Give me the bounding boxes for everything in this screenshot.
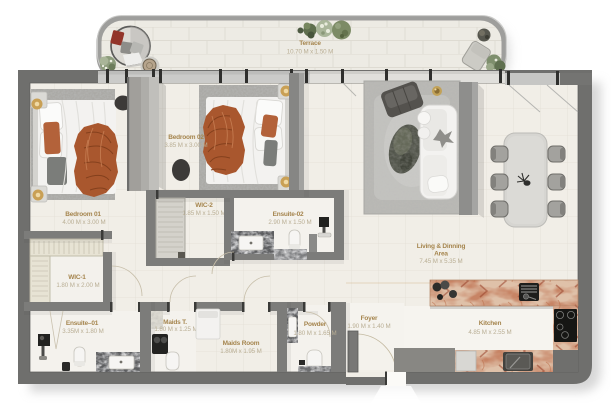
svg-text:Living & Dinning: Living & Dinning: [417, 243, 466, 250]
svg-text:Bedroom 02: Bedroom 02: [168, 134, 204, 141]
svg-text:2.90 M x 1.50 M: 2.90 M x 1.50 M: [268, 219, 311, 226]
svg-text:1.90 M x 1.40 M: 1.90 M x 1.40 M: [347, 323, 390, 330]
svg-text:3.85 M x 3.00 M: 3.85 M x 3.00 M: [164, 142, 207, 149]
svg-text:Area: Area: [434, 251, 448, 258]
svg-text:WIC-2: WIC-2: [195, 202, 213, 209]
svg-text:Maids T.: Maids T.: [163, 319, 187, 326]
svg-text:10.70 M x 1.50 M: 10.70 M x 1.50 M: [287, 49, 334, 56]
svg-text:4.85 M x 2.55 M: 4.85 M x 2.55 M: [468, 329, 511, 336]
svg-text:1.80 M x 2.00 M: 1.80 M x 2.00 M: [56, 282, 99, 289]
svg-text:1.85 M x 1.50 M: 1.85 M x 1.50 M: [182, 210, 225, 217]
svg-text:7.45 M x 5.35 M: 7.45 M x 5.35 M: [419, 258, 462, 265]
svg-text:Powder: Powder: [304, 321, 327, 328]
svg-text:1.80 M x 1.65 M: 1.80 M x 1.65 M: [293, 330, 336, 337]
svg-text:1.80 M x 1.25 M: 1.80 M x 1.25 M: [154, 326, 197, 333]
svg-text:Foyer: Foyer: [361, 315, 378, 322]
svg-text:Terrace: Terrace: [299, 40, 321, 47]
svg-text:Ensuite–01: Ensuite–01: [66, 320, 99, 327]
svg-text:Bedroom 01: Bedroom 01: [65, 211, 101, 218]
svg-text:3.35M x 1.80 M: 3.35M x 1.80 M: [62, 328, 104, 335]
svg-text:1.80M x 1.95 M: 1.80M x 1.95 M: [220, 348, 262, 355]
svg-text:4.00 M x 3.00 M: 4.00 M x 3.00 M: [62, 219, 105, 226]
svg-text:Maids Room: Maids Room: [223, 340, 260, 347]
svg-text:Ensuite-02: Ensuite-02: [273, 211, 304, 218]
svg-text:WIC-1: WIC-1: [68, 274, 86, 281]
svg-text:Kitchen: Kitchen: [479, 320, 502, 327]
